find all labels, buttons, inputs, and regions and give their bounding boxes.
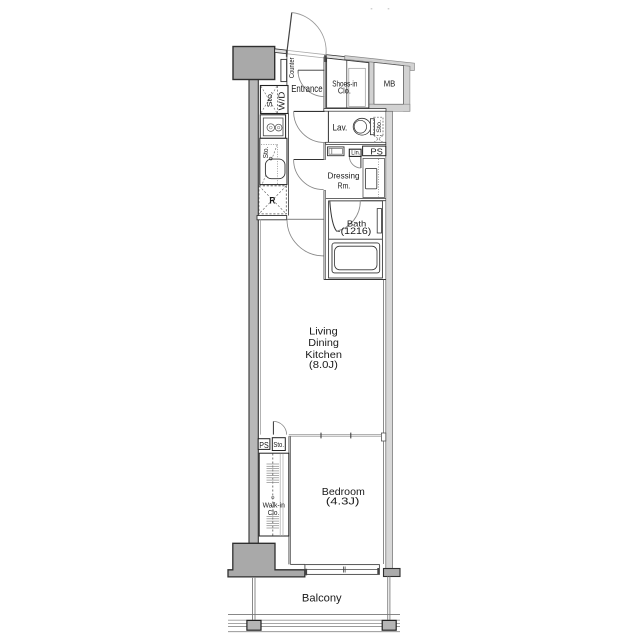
- svg-text:Balcony: Balcony: [302, 593, 342, 605]
- svg-text:Counter: Counter: [289, 57, 296, 78]
- svg-text:Lin.: Lin.: [351, 150, 360, 157]
- svg-text:(4.3J): (4.3J): [326, 496, 360, 508]
- svg-text:Sto.: Sto.: [261, 147, 270, 159]
- svg-text:(1216): (1216): [341, 226, 372, 237]
- svg-text:Walk-in: Walk-in: [263, 503, 285, 510]
- svg-text:Clo.: Clo.: [268, 510, 280, 517]
- svg-text:W/D: W/D: [278, 91, 287, 110]
- svg-text:Sto.: Sto.: [273, 442, 284, 449]
- svg-text:MB: MB: [384, 80, 396, 89]
- svg-text:R: R: [269, 195, 275, 206]
- svg-text:PS: PS: [370, 146, 383, 156]
- svg-text:Rm.: Rm.: [338, 181, 351, 190]
- svg-text:Clo.: Clo.: [338, 86, 351, 96]
- svg-text:Lav.: Lav.: [333, 123, 348, 133]
- svg-text:Dining: Dining: [308, 338, 339, 349]
- svg-text:Dressing: Dressing: [328, 172, 360, 181]
- svg-text:Sto.: Sto.: [376, 120, 383, 133]
- svg-text:Living: Living: [309, 326, 338, 337]
- svg-text:Sto.: Sto.: [265, 92, 274, 108]
- svg-text:PS: PS: [259, 441, 269, 450]
- svg-text:(8.0J): (8.0J): [309, 360, 338, 371]
- svg-text:Entrance: Entrance: [291, 84, 323, 95]
